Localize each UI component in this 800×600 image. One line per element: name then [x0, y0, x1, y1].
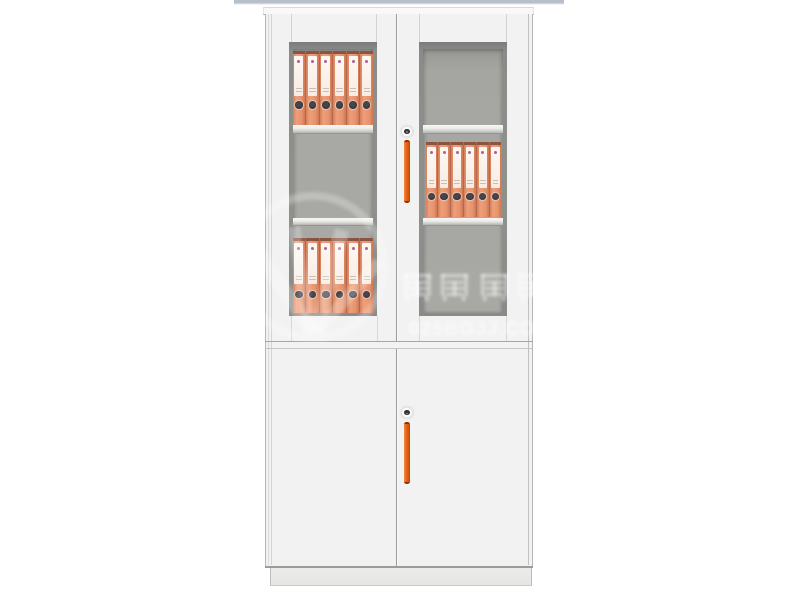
- svg-text:025BGJJ.COM: 025BGJJ.COM: [409, 319, 553, 340]
